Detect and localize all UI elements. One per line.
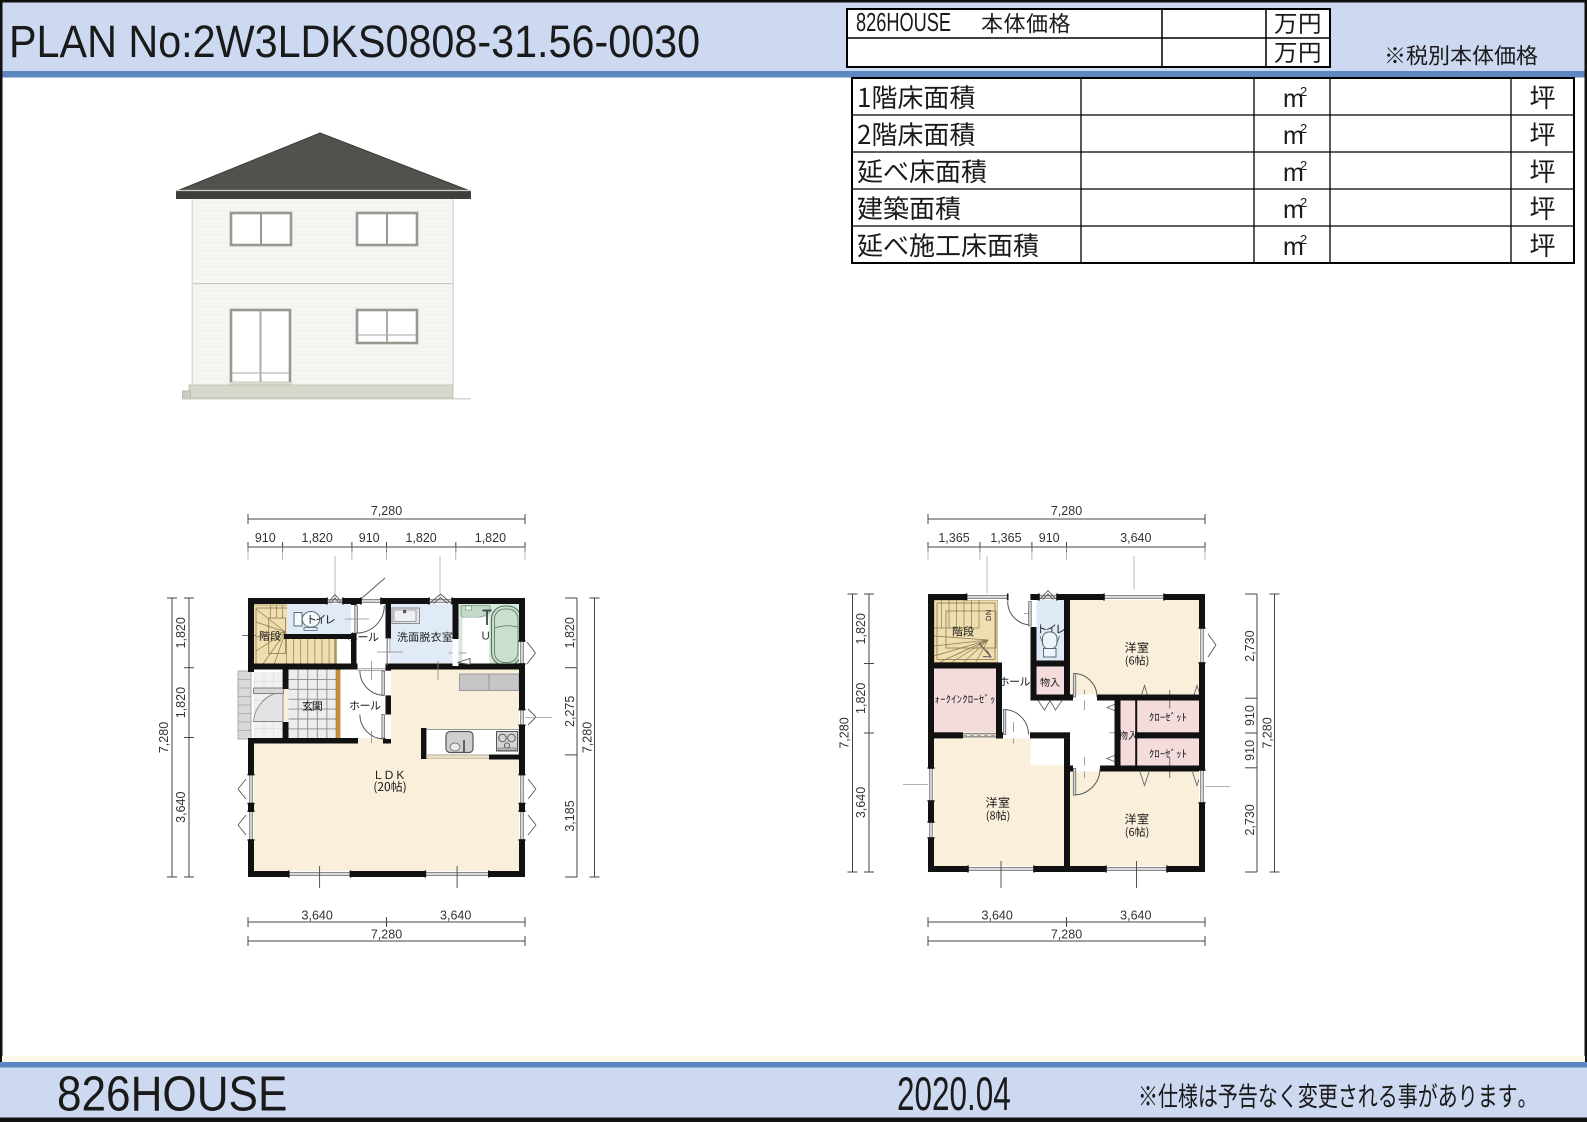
svg-text:2: 2 [1300, 121, 1307, 136]
svg-text:3,640: 3,640 [1120, 909, 1151, 923]
svg-text:2: 2 [1300, 195, 1307, 210]
svg-text:1,820: 1,820 [854, 613, 868, 644]
svg-text:826HOUSE: 826HOUSE [57, 1066, 287, 1121]
svg-text:3,640: 3,640 [854, 787, 868, 818]
svg-text:910: 910 [1243, 740, 1257, 761]
svg-text:910: 910 [359, 531, 380, 545]
svg-text:3,185: 3,185 [563, 800, 577, 831]
svg-text:910: 910 [1039, 531, 1060, 545]
svg-text:1,820: 1,820 [475, 531, 506, 545]
svg-text:1,820: 1,820 [174, 687, 188, 718]
svg-text:910: 910 [1243, 705, 1257, 726]
svg-text:2020.04: 2020.04 [897, 1069, 1011, 1121]
svg-text:1,820: 1,820 [854, 683, 868, 714]
svg-text:2,275: 2,275 [563, 696, 577, 727]
svg-text:1,820: 1,820 [174, 617, 188, 648]
svg-text:1,365: 1,365 [990, 531, 1021, 545]
svg-text:1,820: 1,820 [405, 531, 436, 545]
svg-text:7,280: 7,280 [157, 722, 171, 753]
svg-text:7,280: 7,280 [1051, 504, 1082, 518]
svg-text:7,280: 7,280 [581, 722, 595, 753]
svg-text:3,640: 3,640 [1120, 531, 1151, 545]
svg-text:3,640: 3,640 [982, 909, 1013, 923]
svg-text:7,280: 7,280 [838, 717, 852, 748]
svg-text:2: 2 [1300, 232, 1307, 247]
svg-text:3,640: 3,640 [440, 909, 471, 923]
svg-text:PLAN No:2W3LDKS0808-31.56-0030: PLAN No:2W3LDKS0808-31.56-0030 [9, 17, 700, 67]
svg-text:2: 2 [1300, 158, 1307, 173]
svg-text:2,730: 2,730 [1243, 630, 1257, 661]
svg-text:910: 910 [255, 531, 276, 545]
svg-text:2: 2 [1300, 84, 1307, 99]
svg-text:7,280: 7,280 [371, 928, 402, 942]
svg-text:7,280: 7,280 [371, 504, 402, 518]
svg-text:826HOUSE: 826HOUSE [856, 8, 951, 37]
svg-text:1,820: 1,820 [563, 617, 577, 648]
svg-text:3,640: 3,640 [302, 909, 333, 923]
svg-text:1,820: 1,820 [302, 531, 333, 545]
svg-text:2,730: 2,730 [1243, 804, 1257, 835]
svg-text:7,280: 7,280 [1261, 717, 1275, 748]
svg-text:3,640: 3,640 [174, 792, 188, 823]
svg-text:7,280: 7,280 [1051, 928, 1082, 942]
svg-text:1,365: 1,365 [938, 531, 969, 545]
